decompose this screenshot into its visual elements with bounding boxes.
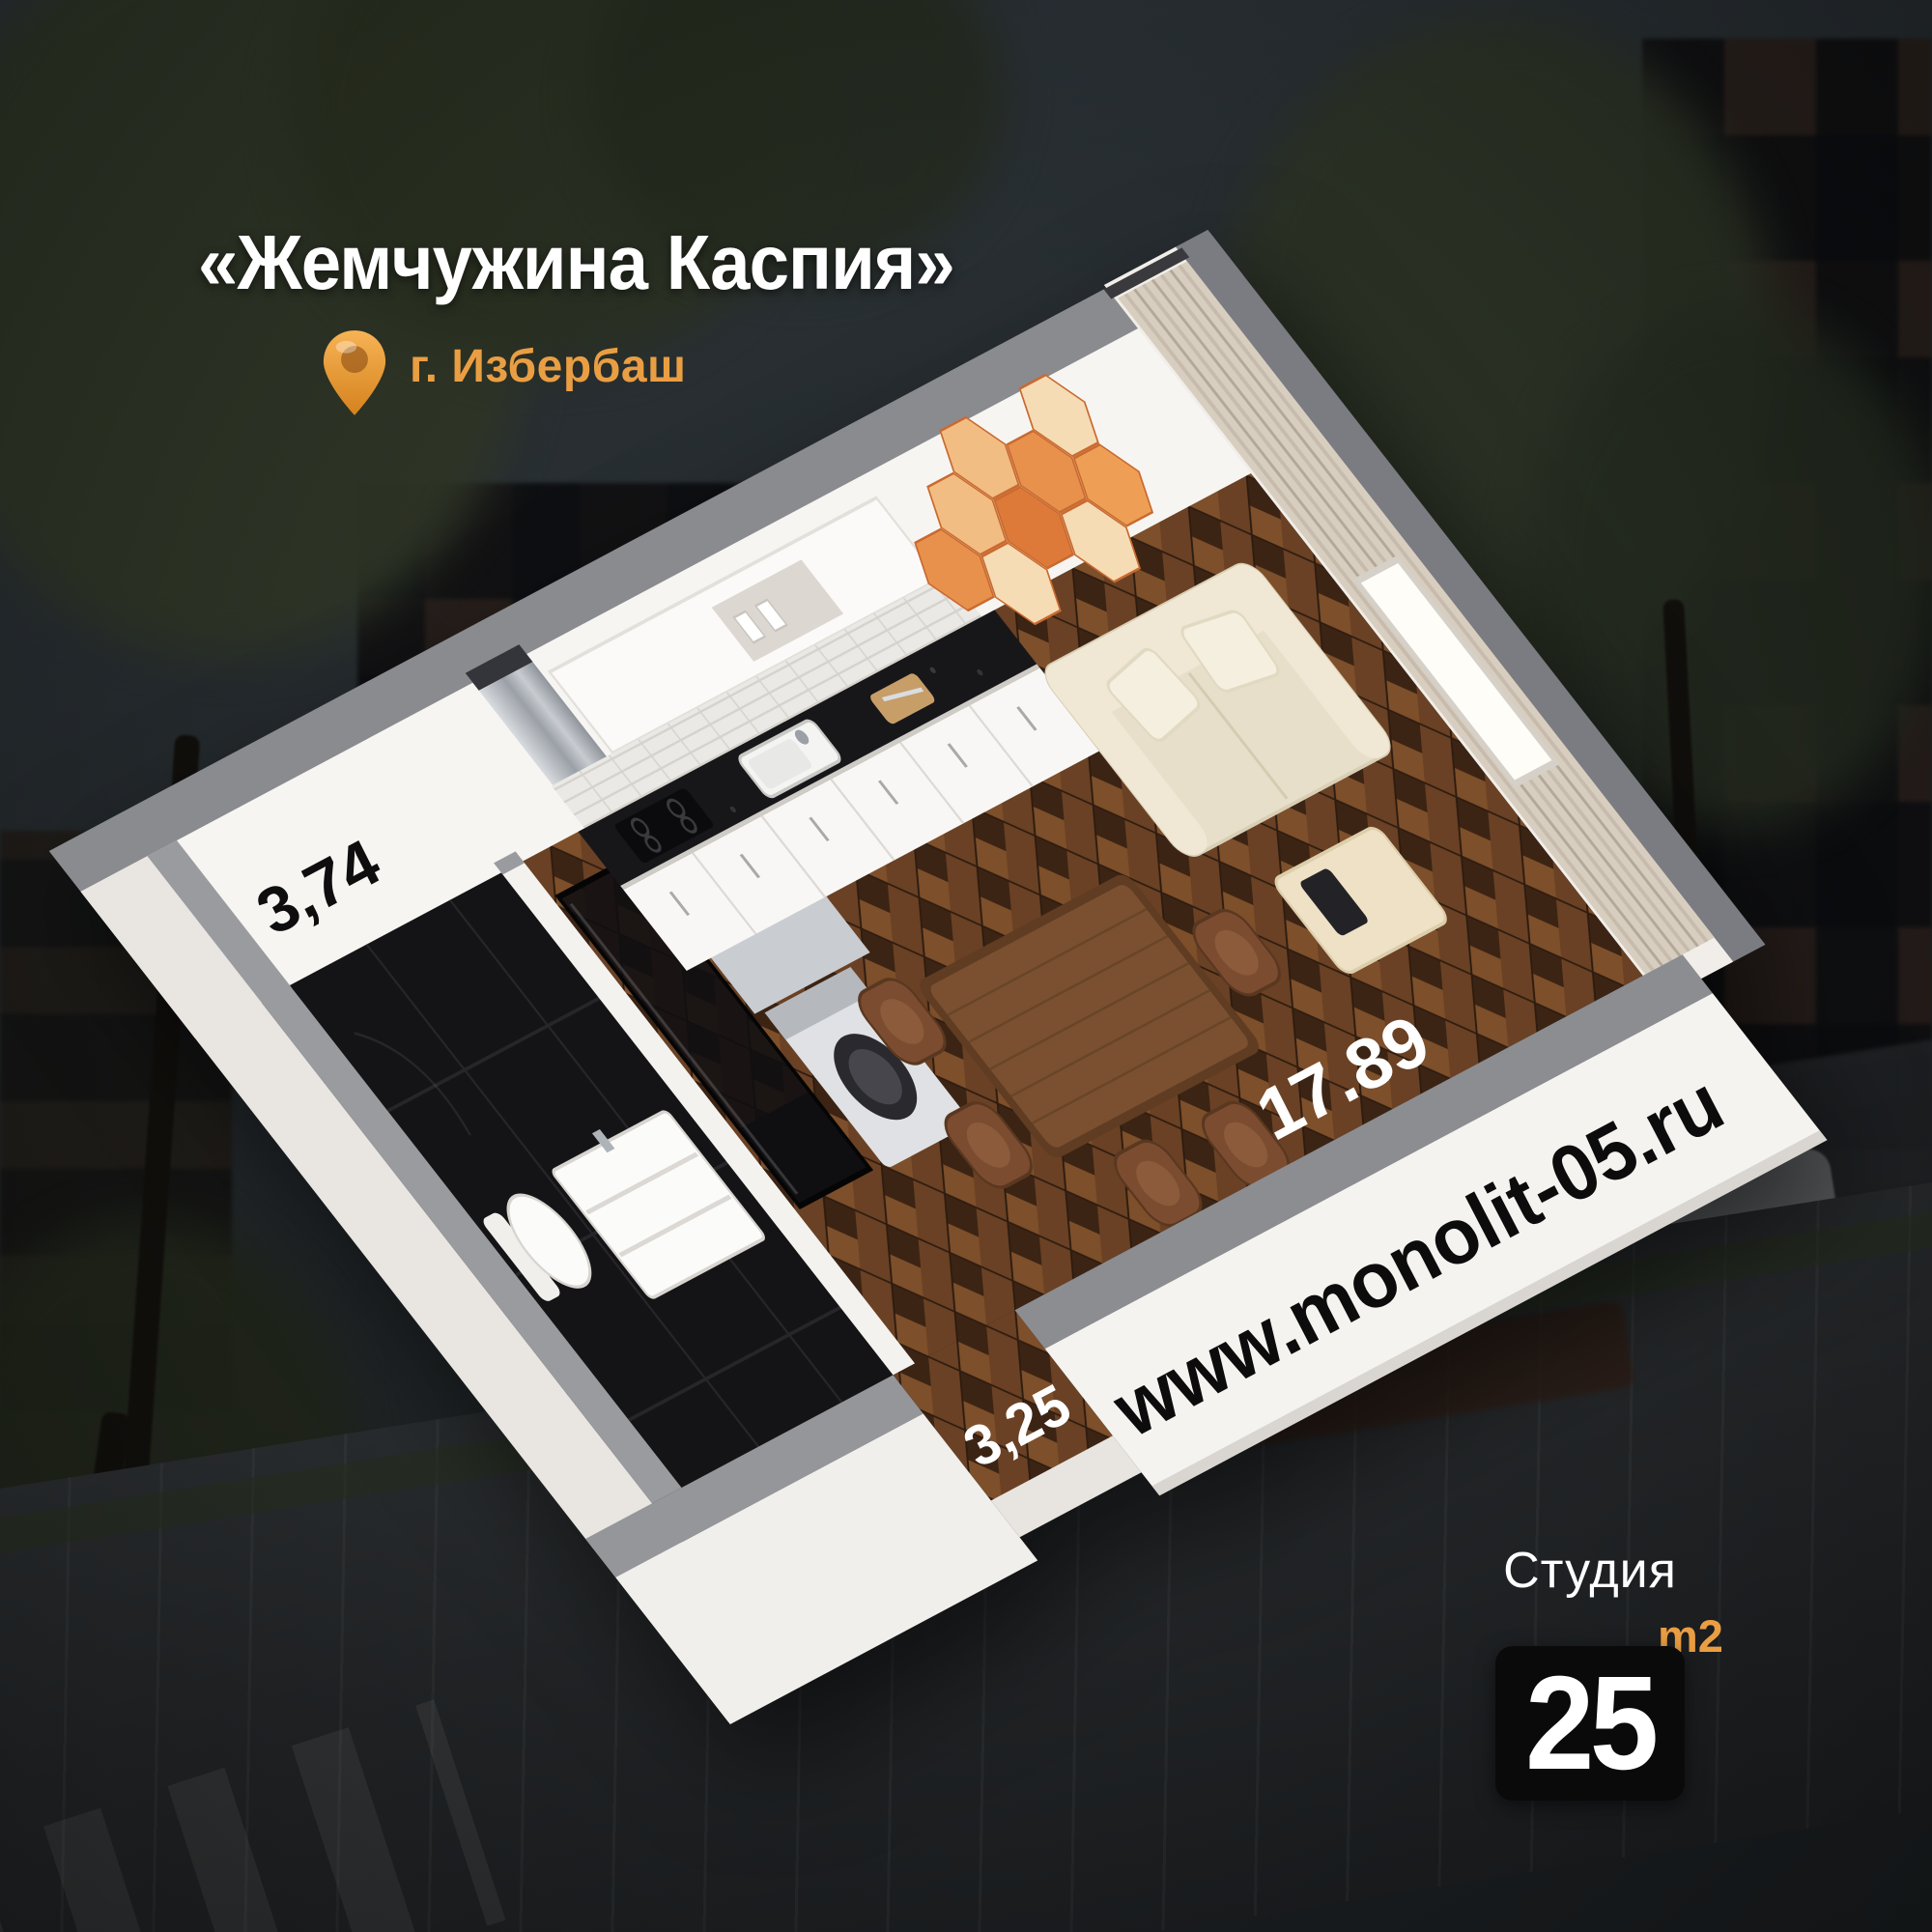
unit-summary: Студия m2 25 — [1495, 1542, 1685, 1600]
location-row: г. Избербаш — [321, 325, 804, 421]
project-title: «Жемчужина Каспия» — [198, 218, 954, 307]
area-badge: 25 — [1495, 1646, 1685, 1801]
map-pin-icon — [321, 328, 388, 417]
poster-canvas: 3,74 17.89 3,25 www.monolit-05.ru «Жемчу… — [0, 0, 1932, 1932]
area-value: 25 — [1525, 1647, 1654, 1801]
unit-type-label: Студия — [1495, 1542, 1685, 1600]
location-city: г. Избербаш — [410, 340, 687, 393]
